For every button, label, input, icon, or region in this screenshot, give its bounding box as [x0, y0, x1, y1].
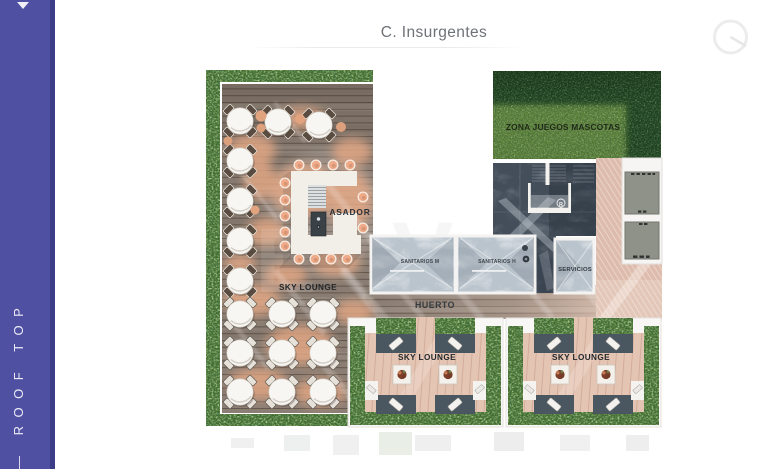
svg-text:SERVICIOS: SERVICIOS: [558, 267, 592, 273]
svg-text:SANITARIOS M: SANITARIOS M: [401, 259, 439, 265]
svg-text:SKY LOUNGE: SKY LOUNGE: [398, 353, 456, 362]
svg-text:HUERTO: HUERTO: [415, 300, 455, 310]
svg-text:R: R: [559, 202, 563, 208]
svg-text:SKY LOUNGE: SKY LOUNGE: [552, 353, 610, 362]
svg-text:SANITARIOS H: SANITARIOS H: [478, 259, 516, 265]
svg-text:SKY LOUNGE: SKY LOUNGE: [279, 283, 337, 292]
svg-text:ZONA JUEGOS MASCOTAS: ZONA JUEGOS MASCOTAS: [506, 122, 620, 132]
svg-text:ASADOR: ASADOR: [329, 207, 370, 217]
